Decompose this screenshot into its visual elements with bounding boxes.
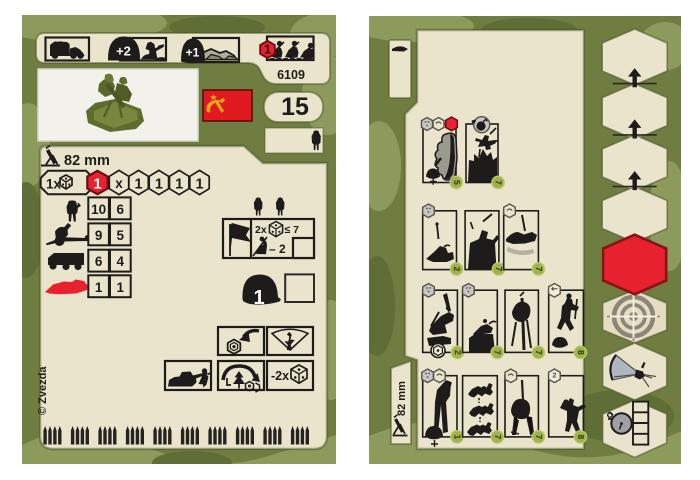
svg-text:– 2: – 2 (269, 242, 286, 256)
svg-text:9: 9 (95, 228, 103, 243)
svg-text:7: 7 (493, 435, 503, 440)
svg-text:-2x: -2x (271, 369, 289, 383)
svg-text:82 mm: 82 mm (396, 381, 408, 416)
svg-text:7: 7 (534, 435, 544, 440)
svg-text:7: 7 (493, 350, 503, 355)
svg-text:+1: +1 (186, 46, 200, 60)
svg-text:1: 1 (195, 177, 203, 193)
svg-text:1: 1 (253, 287, 264, 309)
svg-text:1: 1 (135, 177, 143, 193)
svg-text:8: 8 (576, 435, 586, 440)
svg-text:5: 5 (117, 228, 125, 243)
svg-text:1: 1 (155, 177, 163, 193)
svg-text:1: 1 (117, 280, 125, 295)
svg-text:5: 5 (452, 180, 462, 185)
svg-text:7: 7 (534, 350, 544, 355)
svg-text:2: 2 (452, 267, 462, 272)
svg-text:7: 7 (494, 180, 504, 185)
svg-text:1: 1 (264, 43, 271, 57)
svg-text:6: 6 (117, 202, 125, 217)
svg-text:1: 1 (95, 280, 103, 295)
svg-text:2x: 2x (255, 224, 267, 236)
svg-text:x: x (115, 176, 123, 191)
svg-text:+2: +2 (116, 44, 131, 59)
svg-text:15: 15 (281, 93, 309, 121)
svg-text:10: 10 (91, 202, 106, 217)
svg-text:2: 2 (453, 350, 463, 355)
svg-text:7: 7 (534, 267, 544, 272)
svg-text:4: 4 (117, 254, 125, 269)
svg-text:≤ 7: ≤ 7 (285, 224, 300, 236)
svg-text:7: 7 (494, 267, 504, 272)
svg-text:2: 2 (552, 371, 556, 380)
svg-text:1: 1 (453, 435, 463, 440)
svg-text:82 mm: 82 mm (64, 153, 110, 169)
svg-text:6109: 6109 (277, 68, 305, 82)
svg-text:1: 1 (93, 176, 101, 193)
svg-text:8: 8 (576, 350, 586, 355)
svg-text:1: 1 (175, 177, 183, 193)
svg-text:© Zvezda: © Zvezda (37, 366, 49, 415)
svg-text:6: 6 (95, 254, 103, 269)
